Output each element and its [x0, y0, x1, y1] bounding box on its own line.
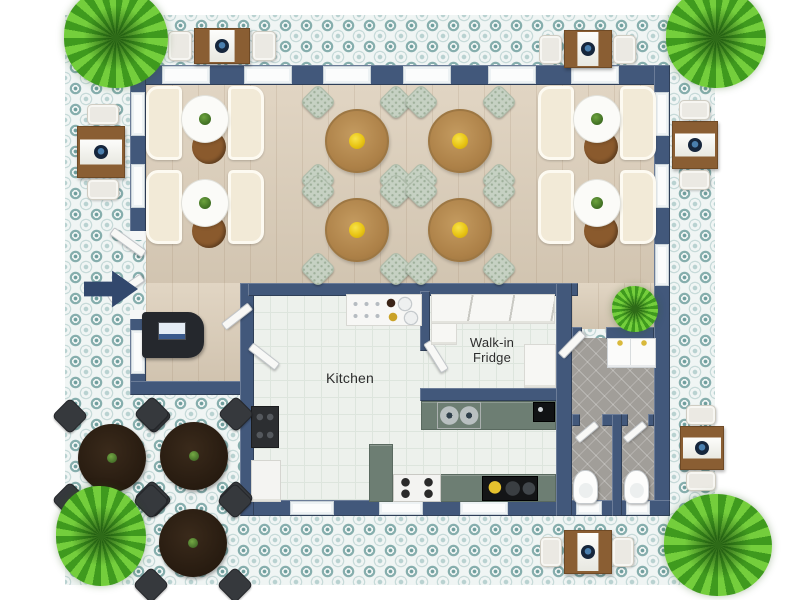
dining-chair	[481, 84, 518, 121]
window[interactable]	[655, 92, 669, 136]
centerpiece	[349, 222, 365, 238]
double-sink[interactable]	[437, 402, 481, 429]
outdoor-dining-set[interactable]	[138, 488, 248, 598]
patio-table[interactable]	[194, 28, 250, 64]
outdoor-chair	[217, 483, 254, 520]
window[interactable]	[403, 66, 451, 84]
booth-bench	[620, 86, 656, 160]
walk-in-fridge-label-line2: Fridge	[452, 351, 532, 366]
window[interactable]	[290, 501, 334, 515]
furniture-layer	[0, 0, 800, 600]
dining-chair	[403, 173, 440, 210]
booth-seating[interactable]	[538, 170, 656, 246]
patio-table[interactable]	[680, 426, 724, 470]
patio-chair[interactable]	[87, 179, 119, 200]
centerpiece	[452, 133, 468, 149]
window[interactable]	[488, 66, 536, 84]
patio-chair[interactable]	[613, 35, 636, 64]
window[interactable]	[244, 66, 292, 84]
window[interactable]	[323, 66, 371, 84]
patio-chair[interactable]	[686, 471, 716, 491]
booth-bench	[146, 170, 182, 244]
window[interactable]	[131, 92, 145, 136]
entrance-arrow	[84, 266, 138, 312]
booth-table	[182, 96, 228, 142]
window[interactable]	[379, 501, 423, 515]
patio-chair[interactable]	[87, 104, 119, 125]
toilet[interactable]	[573, 470, 598, 504]
booth-bench	[146, 86, 182, 160]
dining-chair	[300, 173, 337, 210]
centerpiece	[107, 453, 117, 463]
door-jamb	[130, 231, 146, 240]
booth-seating[interactable]	[146, 86, 264, 162]
plant[interactable]	[664, 494, 772, 596]
service-counter[interactable]	[346, 294, 422, 326]
plant[interactable]	[64, 0, 168, 88]
gas-stove[interactable]	[393, 474, 441, 502]
dining-chair	[403, 84, 440, 121]
patio-chair[interactable]	[679, 170, 710, 190]
coffee-machine[interactable]	[533, 402, 555, 422]
indoor-plant[interactable]	[612, 286, 658, 332]
outdoor-chair	[218, 396, 255, 433]
dining-chair	[300, 251, 337, 288]
walk-in-fridge-label-line1: Walk-in	[452, 336, 532, 351]
patio-chair[interactable]	[686, 405, 716, 425]
patio-chair[interactable]	[168, 31, 192, 61]
dining-table-set[interactable]	[305, 178, 409, 282]
booth-seating[interactable]	[146, 170, 264, 246]
window[interactable]	[655, 244, 669, 286]
booth-bench	[538, 86, 574, 160]
patio-table[interactable]	[672, 121, 718, 169]
booth-bench	[538, 170, 574, 244]
service-door-leaf[interactable]	[248, 342, 280, 370]
plant[interactable]	[666, 0, 766, 88]
induction-cooktop[interactable]	[482, 476, 538, 501]
booth-table	[182, 180, 228, 226]
window[interactable]	[571, 66, 619, 84]
toilet[interactable]	[624, 470, 649, 504]
plant[interactable]	[56, 486, 146, 586]
patio-chair[interactable]	[252, 31, 276, 61]
window[interactable]	[162, 66, 210, 84]
fridge-shelf[interactable]	[431, 294, 555, 324]
kitchen-cabinet[interactable]	[251, 460, 281, 502]
outdoor-chair	[52, 398, 89, 435]
booth-bench	[228, 86, 264, 160]
host-stand[interactable]	[142, 312, 204, 358]
vanity-double-sink[interactable]	[607, 338, 656, 368]
outdoor-chair	[217, 567, 254, 600]
centerpiece	[189, 451, 199, 461]
patio-table[interactable]	[77, 126, 125, 178]
patio-chair[interactable]	[612, 537, 634, 567]
stall-door[interactable]	[574, 421, 599, 444]
patio-table[interactable]	[564, 530, 612, 574]
window[interactable]	[655, 164, 669, 208]
range-cooktop[interactable]	[251, 406, 279, 448]
dining-table-set[interactable]	[408, 178, 512, 282]
centerpiece	[349, 133, 365, 149]
floor-plan: Kitchen Walk-in Fridge	[0, 0, 800, 600]
booth-bench	[228, 170, 264, 244]
stall-door[interactable]	[622, 421, 647, 444]
dining-chair	[481, 251, 518, 288]
centerpiece	[188, 538, 198, 548]
patio-chair[interactable]	[540, 537, 562, 567]
outdoor-chair	[133, 567, 170, 600]
patio-chair[interactable]	[679, 100, 710, 120]
outdoor-chair	[134, 396, 171, 433]
service-door-leaf[interactable]	[221, 302, 253, 330]
booth-table	[574, 96, 620, 142]
bathroom-hall-door[interactable]	[558, 330, 587, 359]
window[interactable]	[131, 164, 145, 208]
booth-seating[interactable]	[538, 86, 656, 162]
booth-table	[574, 180, 620, 226]
kitchen-island[interactable]	[369, 444, 393, 502]
kitchen-label: Kitchen	[295, 370, 405, 386]
patio-table[interactable]	[564, 30, 612, 68]
dining-chair	[403, 251, 440, 288]
dining-chair	[300, 84, 337, 121]
walk-in-fridge-label: Walk-in Fridge	[452, 336, 532, 366]
dining-chair	[481, 173, 518, 210]
centerpiece	[452, 222, 468, 238]
window[interactable]	[460, 501, 508, 515]
patio-chair[interactable]	[539, 35, 562, 64]
booth-bench	[620, 170, 656, 244]
